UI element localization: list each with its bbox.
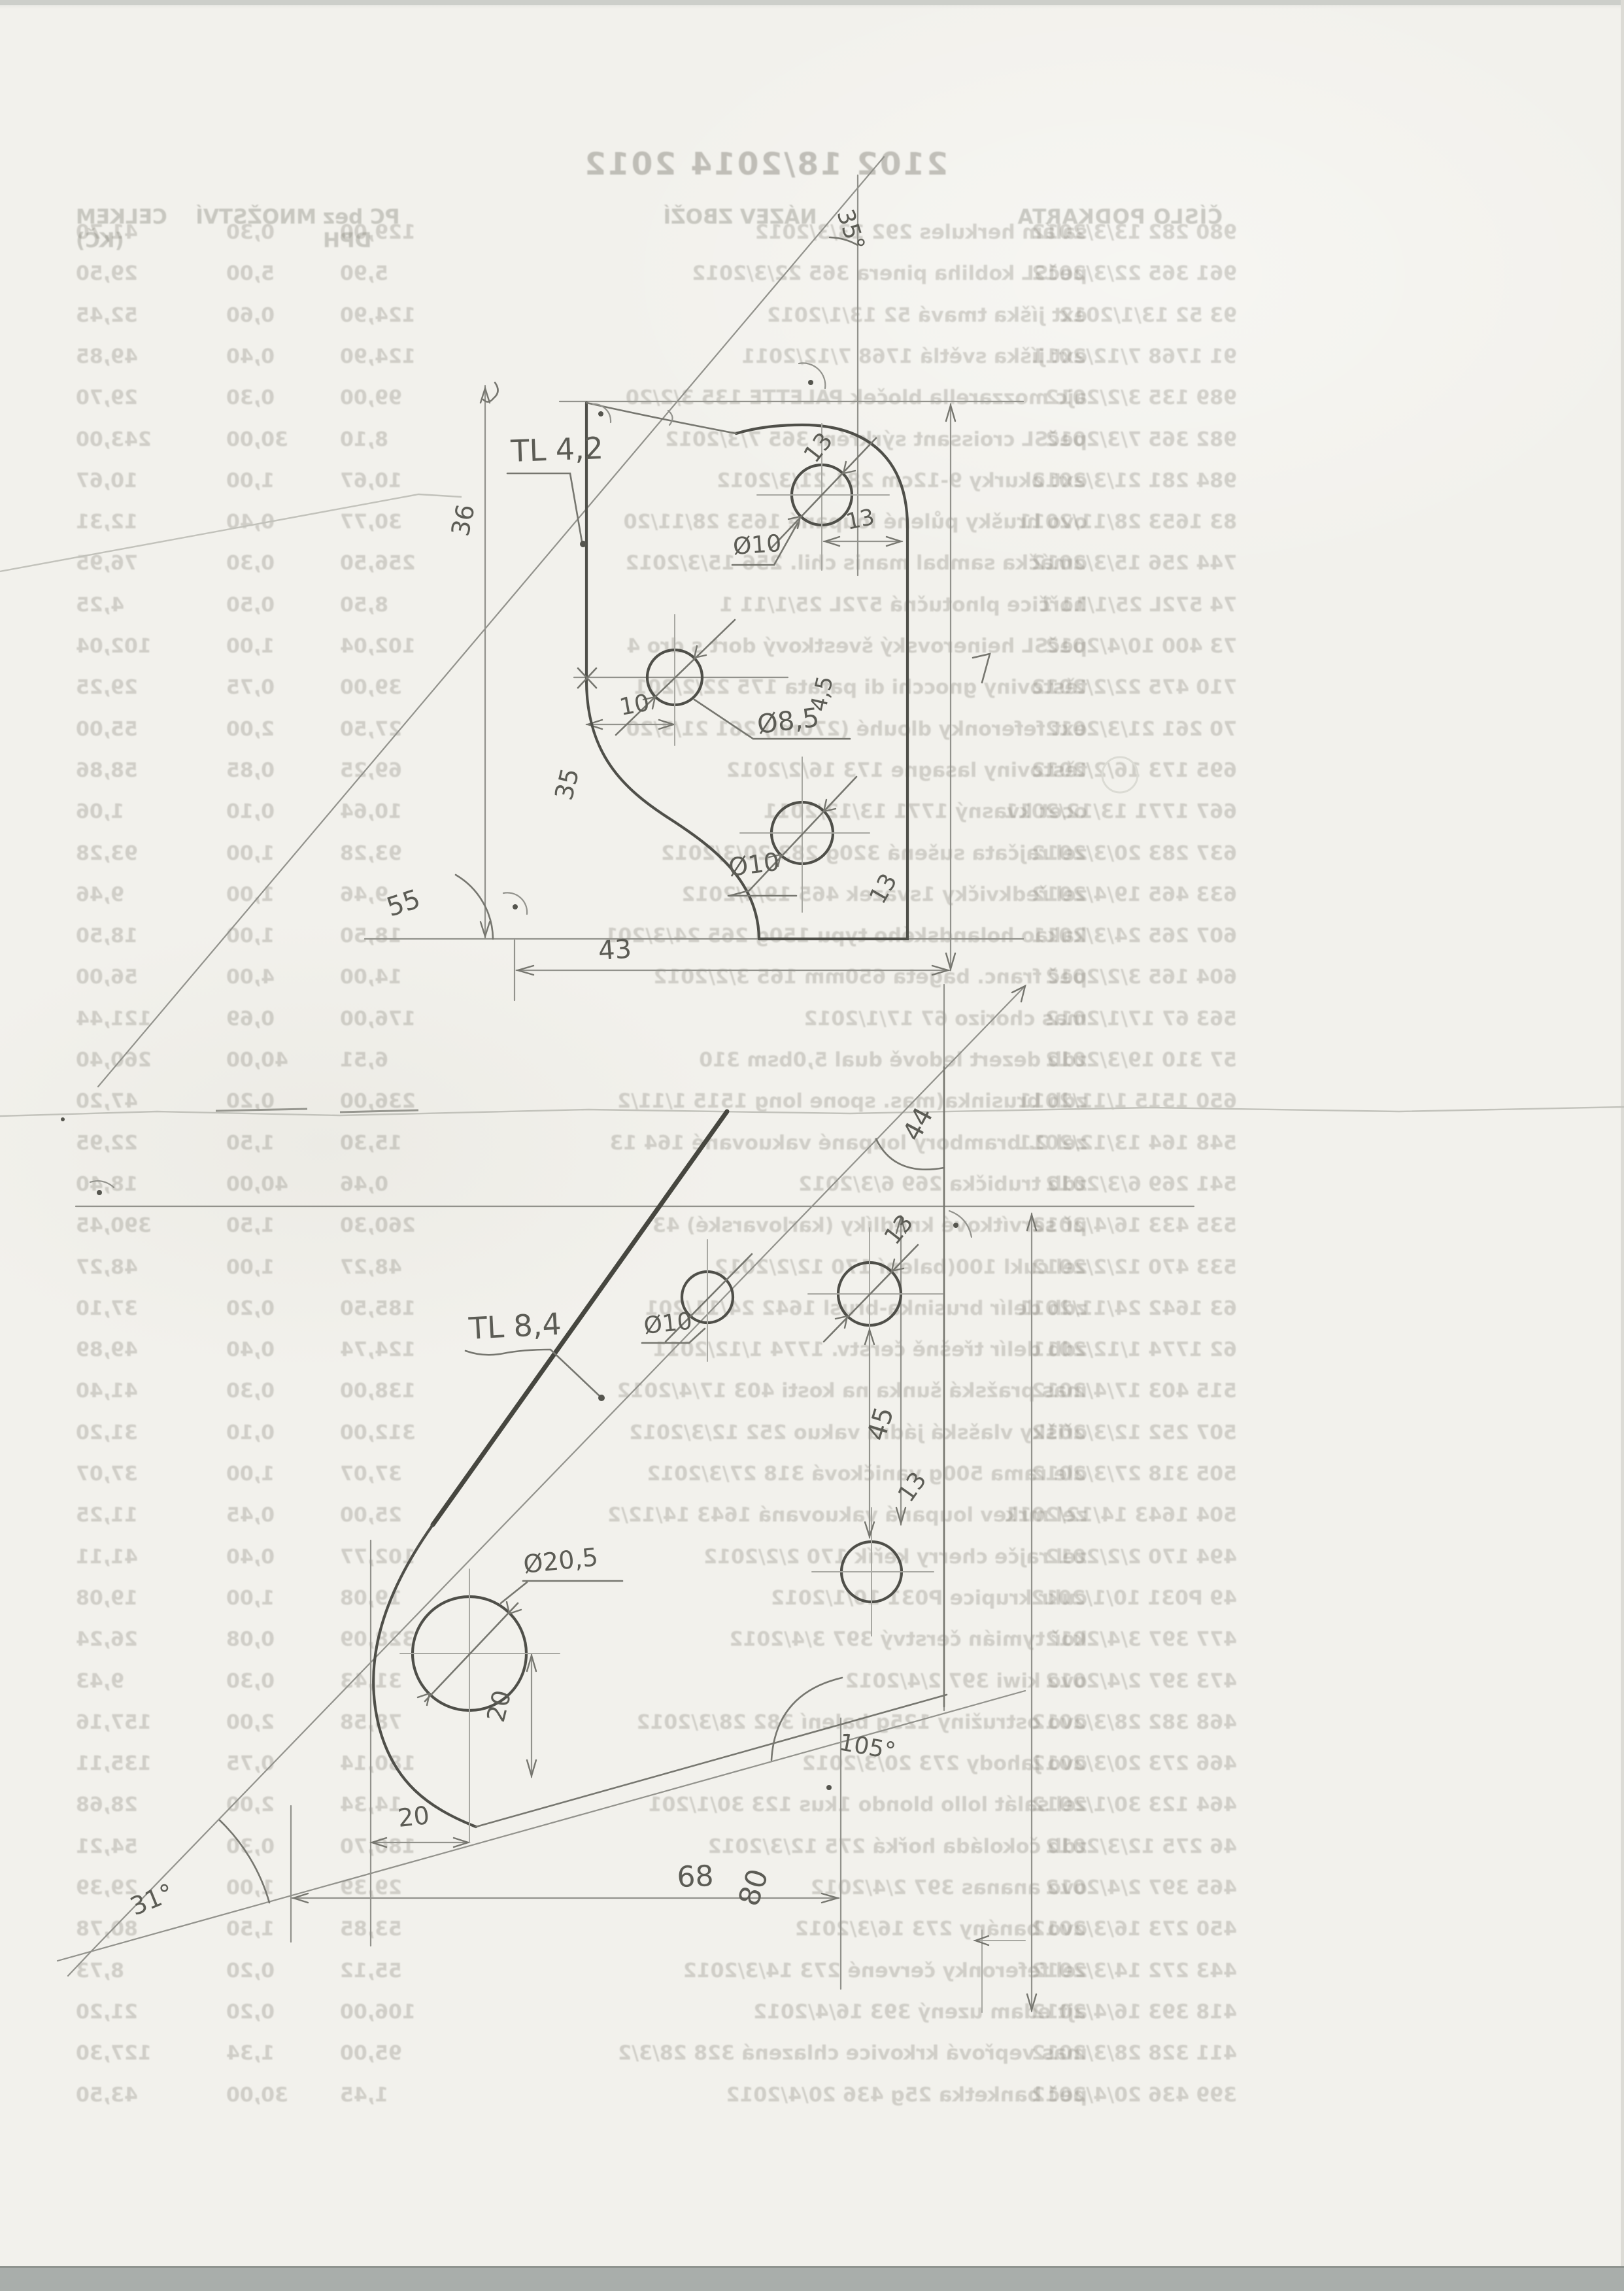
dim-20-v <box>527 1654 536 1777</box>
angle-31-arc <box>220 1820 269 1903</box>
dim-36-label: 36 <box>446 501 481 538</box>
hole-d10-lower-label: Ø10 <box>727 847 781 882</box>
dim-80 <box>1027 1213 1036 2011</box>
hole-d10-top-label: Ø10 <box>732 530 783 560</box>
label-tl84: TL 8,4 <box>467 1306 562 1346</box>
hole-d205-label: Ø20,5 <box>522 1542 600 1579</box>
dim-20-h <box>371 1838 469 1847</box>
dim-13-edge-label: 13 <box>844 504 877 535</box>
angle-105-label: 105° <box>837 1729 898 1765</box>
dim-36 <box>481 386 490 938</box>
dim-68-label: 68 <box>677 1859 715 1894</box>
dim-10-label: 10 <box>617 690 651 721</box>
angle-44-arc <box>876 1139 944 1170</box>
angle-44-label: 44 <box>897 1102 939 1146</box>
label-tl42: TL 4,2 <box>509 430 603 469</box>
bottom-plate-outline <box>373 1067 947 1827</box>
dim-35-label: 35 <box>549 766 584 804</box>
angle-105-arc <box>771 1678 842 1760</box>
dim-13-lower-label: 13 <box>864 869 902 908</box>
dim-20h-label: 20 <box>396 1801 431 1833</box>
dim-45-thickness-label: 4,5 <box>805 673 839 714</box>
dim-13-dia-label: 13 <box>799 428 839 467</box>
angle-55-label: 55 <box>383 884 424 923</box>
sketch-top: TL 4,2 36 35 10 43 Ø8,5 Ø10 13 13 Ø10 13… <box>98 157 1023 1087</box>
sketch-bottom: TL 8,4 44 Ø10 13 13 45 Ø20,5 20 20 68 80… <box>58 654 1194 2012</box>
fold-creases <box>0 494 1624 1121</box>
dim-80-label: 80 <box>732 1865 775 1910</box>
dim-20v-label: 20 <box>481 1688 516 1725</box>
scanner-background-strip <box>0 2266 1624 2291</box>
angle-31-label: 31° <box>126 1878 178 1921</box>
angle-35-label: 35° <box>831 206 870 254</box>
hole-d13-label: 13 <box>879 1210 919 1249</box>
dim-45-label: 45 <box>862 1404 900 1444</box>
pencil-drawing-svg: TL 4,2 36 35 10 43 Ø8,5 Ø10 13 13 Ø10 13… <box>0 0 1624 2291</box>
dim-43 <box>516 966 949 975</box>
holes-gap-label: 13 <box>893 1467 932 1507</box>
dim-43-label: 43 <box>597 934 632 966</box>
scanned-page: 2102 18/2014 2012 ČÍSLO PODKARTA NÁZEV Z… <box>0 0 1624 2291</box>
hole-d10-b-label: Ø10 <box>643 1308 694 1340</box>
